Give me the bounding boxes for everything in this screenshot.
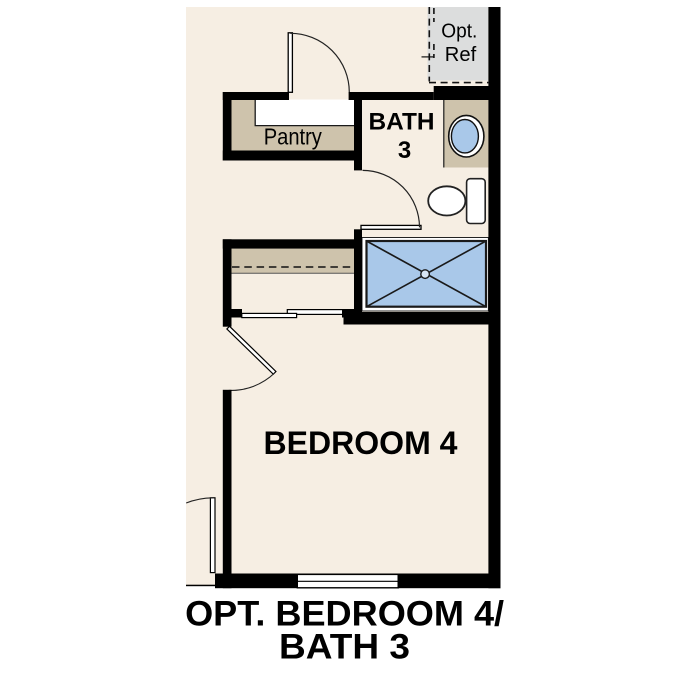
- svg-text:BATH 3: BATH 3: [279, 627, 410, 666]
- svg-text:Opt.: Opt.: [441, 20, 477, 42]
- svg-text:Ref: Ref: [445, 44, 477, 66]
- svg-text:Pantry: Pantry: [264, 124, 323, 150]
- svg-text:3: 3: [398, 137, 411, 164]
- svg-text:BEDROOM 4: BEDROOM 4: [264, 425, 458, 461]
- svg-text:BATH: BATH: [369, 108, 435, 135]
